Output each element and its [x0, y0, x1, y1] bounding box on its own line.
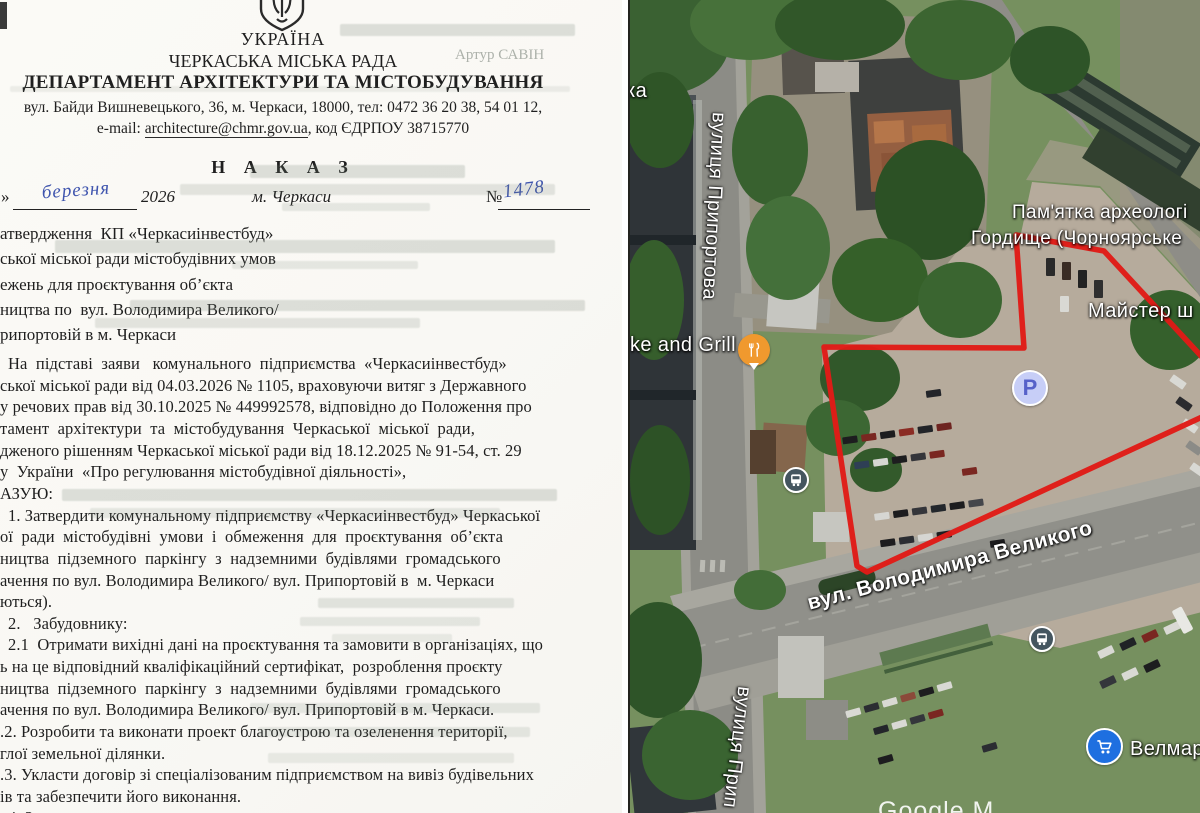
fork-knife-icon — [746, 342, 762, 358]
restaurant-pin-icon[interactable] — [738, 334, 770, 366]
doc-year: 2026 — [141, 187, 175, 207]
body-line: у речових прав від 30.10.2025 № 44999257… — [0, 397, 596, 417]
body-line: На підставі заяви комунального підприємс… — [8, 354, 604, 374]
ghost-text — [332, 634, 452, 642]
number-underline — [498, 209, 590, 210]
ghost-text — [268, 753, 514, 763]
ghost-text — [300, 617, 480, 626]
email-address: architecture@chmr.gov.ua — [145, 120, 308, 138]
shopping-cart-icon — [1095, 737, 1114, 756]
scanned-order-document: УКРАЇНА ЧЕРКАСЬКА МІСЬКА РАДА ДЕПАРТАМЕН… — [0, 0, 622, 813]
scan-edge-artifact — [0, 2, 7, 29]
ghost-text — [340, 24, 575, 36]
ghost-text — [55, 240, 555, 253]
bus-glyph-icon — [789, 473, 803, 487]
email-suffix: , код ЄДРПОУ 38715770 — [308, 120, 469, 137]
ghost-text — [250, 703, 540, 713]
date-underline — [13, 209, 137, 210]
map-watermark: Google M — [878, 797, 994, 813]
body-line: ої ради містобудівні умови і обмеження д… — [0, 527, 596, 547]
satellite-map[interactable]: ка вулиця Припортова ke and Grill Пам'ят… — [628, 0, 1200, 813]
bus-stop-icon[interactable] — [783, 467, 809, 493]
body-line: ь на це відповідний кваліфікаційний серт… — [0, 657, 596, 677]
body-line: тамент архітектури та містобудування Чер… — [0, 419, 596, 439]
monument-label-line1: Пам'ятка археологі — [1012, 202, 1188, 224]
ghost-signature: Артур САВІН — [455, 47, 544, 64]
body-line: ництва підземного паркінгу з надземними … — [0, 549, 596, 569]
parking-icon[interactable]: P — [1012, 370, 1048, 406]
parking-letter: P — [1023, 375, 1038, 401]
ghost-text — [232, 261, 418, 269]
poi-label-grill: ke and Grill — [630, 334, 736, 357]
body-line: ачення по вул. Володимира Великого/ вул.… — [0, 571, 596, 591]
date-quote-mark: » — [1, 187, 10, 207]
ghost-text — [95, 318, 420, 328]
ghost-text — [250, 165, 465, 178]
body-line: у України «Про регулювання містобудівної… — [0, 462, 596, 482]
bus-glyph-icon — [1035, 632, 1049, 646]
poi-label-velmart: Велмарт — [1130, 738, 1200, 761]
body-line-clipped: 4. З — [8, 808, 604, 813]
body-line: дженого рішенням Черкаської міської ради… — [0, 441, 596, 461]
bus-stop-icon[interactable] — [1029, 626, 1055, 652]
ghost-text — [62, 489, 557, 501]
body-line: .3. Укласти договір зі спеціалізованим п… — [0, 765, 596, 785]
monument-label-line2: Гордище (Чорноярське — [971, 228, 1182, 250]
email-prefix: e-mail: — [97, 120, 145, 137]
ghost-text — [90, 508, 500, 518]
velmart-store-icon[interactable] — [1086, 728, 1123, 765]
ghost-text — [130, 300, 585, 311]
body-line: ництва підземного паркінгу з надземними … — [0, 679, 596, 699]
subject-line: ежень для проєктування об’єкта — [0, 275, 233, 295]
body-line: ської міської ради від 04.03.2026 № 1105… — [0, 376, 596, 396]
body-line: ів та забезпечити його виконання. — [0, 787, 596, 807]
handwritten-month: березня — [15, 176, 136, 206]
subject-line: рипортовій в м. Черкаси — [0, 325, 176, 345]
doc-email-line: e-mail: architecture@chmr.gov.ua, код ЄД… — [0, 120, 566, 138]
doc-address-line: вул. Байди Вишневецького, 36, м. Черкаси… — [0, 99, 566, 117]
page: УКРАЇНА ЧЕРКАСЬКА МІСЬКА РАДА ДЕПАРТАМЕН… — [0, 0, 1200, 813]
ghost-text — [180, 184, 555, 195]
body-line: 2.1 Отримати вихідні дані на проєктуванн… — [8, 635, 604, 655]
street-label-partial: ка — [628, 80, 647, 103]
ghost-text — [258, 727, 530, 737]
poi-label-maister: Майстер ш — [1088, 300, 1194, 323]
ghost-text — [318, 598, 514, 608]
ghost-text — [282, 203, 430, 211]
ghost-text — [10, 86, 570, 92]
